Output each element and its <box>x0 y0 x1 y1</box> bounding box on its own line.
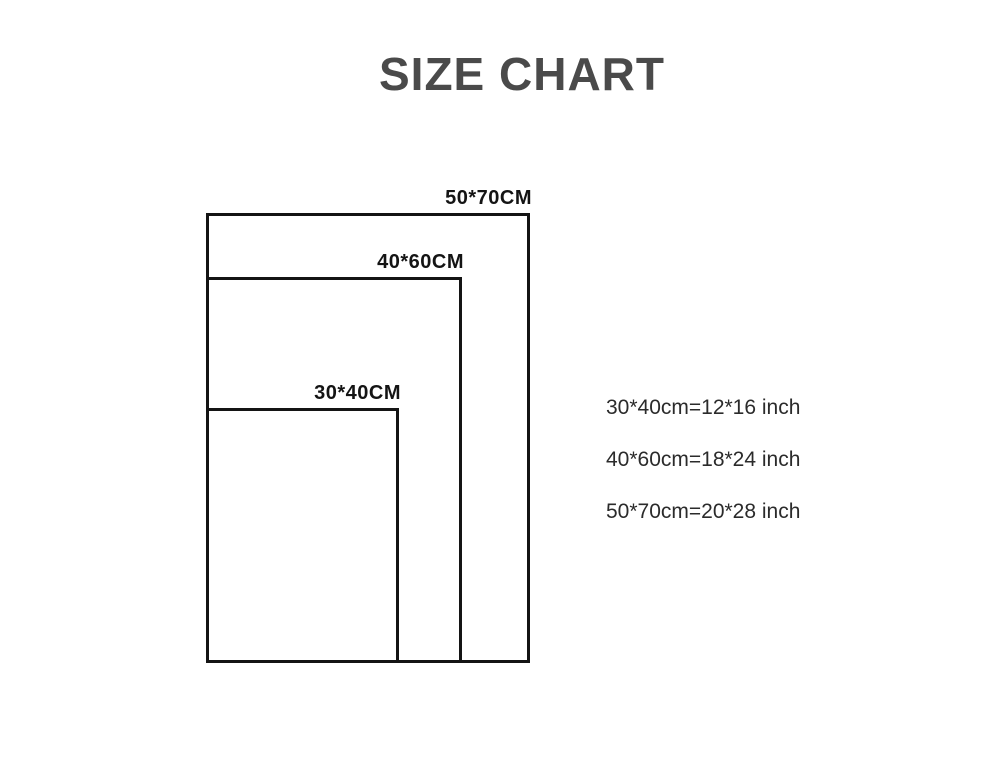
rect-30x40-label: 30*40CM <box>314 382 401 405</box>
conversion-50x70: 50*70cm=20*28 inch <box>606 501 800 523</box>
conversion-list: 30*40cm=12*16 inch 40*60cm=18*24 inch 50… <box>606 397 800 553</box>
conversion-40x60: 40*60cm=18*24 inch <box>606 449 800 471</box>
size-chart-page: SIZE CHART 50*70CM 40*60CM 30*40CM 30*40… <box>0 0 990 772</box>
rect-40x60-label: 40*60CM <box>377 251 464 274</box>
rect-30x40: 30*40CM <box>206 408 399 663</box>
page-title: SIZE CHART <box>379 47 665 101</box>
conversion-30x40: 30*40cm=12*16 inch <box>606 397 800 419</box>
rect-50x70-label: 50*70CM <box>445 187 532 210</box>
